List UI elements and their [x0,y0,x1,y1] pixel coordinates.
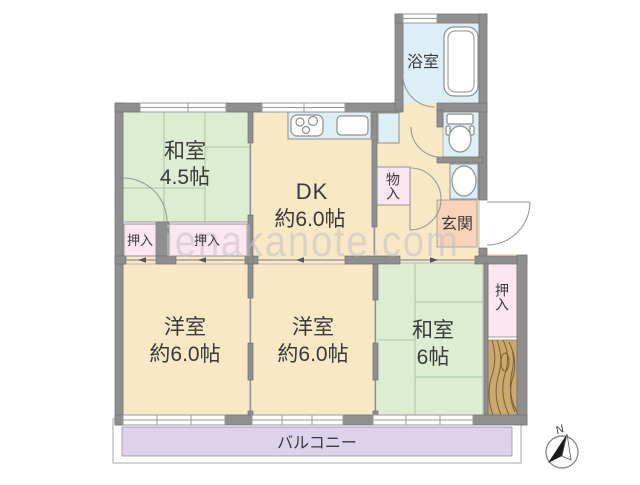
compass-icon: N [546,423,578,468]
label-dk-size: 約6.0帖 [274,208,345,231]
window-bottom-1 [123,415,225,425]
washing-machine-pan [378,113,399,143]
kitchen-counter [288,112,371,139]
label-dk-name: DK [296,179,329,204]
stove-icon [291,115,323,136]
label-genkan: 玄関 [441,215,473,233]
window-top-2 [262,103,345,112]
label-washitsu-small-name: 和室 [164,140,206,163]
label-yoshitsu-center-size: 約6.0帖 [277,343,348,366]
floor-plan: ienakanote.com 和室 4.5帖 DK 約6.0帖 浴室 物入 玄関… [0,0,640,480]
washbasin-icon [450,164,478,199]
bathtub-icon [444,27,478,96]
room-yoshitsu-left-floor [123,264,250,415]
label-washitsu-right-name: 和室 [412,319,454,342]
label-washitsu-right-size: 6帖 [417,346,450,369]
room-yoshitsu-center-floor [250,264,375,415]
toilet-icon [446,114,474,152]
label-closet-left: 押入 [127,233,153,248]
compass-north-label: N [554,423,566,437]
label-storage: 物入 [385,172,401,200]
label-washitsu-small-size: 4.5帖 [160,166,210,189]
floor-plan-page: ienakanote.com 和室 4.5帖 DK 約6.0帖 浴室 物入 玄関… [0,0,640,480]
label-balcony: バルコニー [277,435,357,452]
label-closet-center: 押入 [194,233,220,248]
sink-icon [337,116,368,135]
label-yoshitsu-center-name: 洋室 [292,316,334,339]
window-bathroom [403,14,437,23]
label-closet-right: 押入 [494,283,510,311]
label-yoshitsu-left-size: 約6.0帖 [149,343,220,366]
door-entrance [487,202,530,245]
window-top-1 [140,103,226,112]
window-bottom-2 [252,415,343,425]
bathroom-door-threshold [403,103,437,113]
label-bathroom: 浴室 [407,53,439,71]
window-bottom-3 [373,415,473,425]
label-yoshitsu-left-name: 洋室 [164,316,206,339]
